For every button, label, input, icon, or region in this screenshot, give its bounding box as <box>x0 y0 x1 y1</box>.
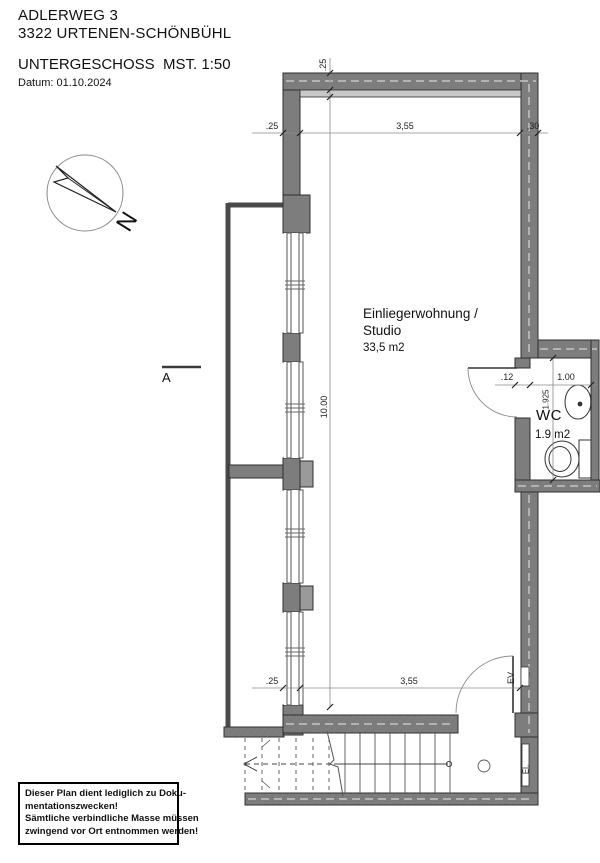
stairs <box>244 731 490 796</box>
lightwell-bottom-hatch <box>224 727 284 737</box>
dim-top-left: .25 <box>260 121 284 131</box>
dim-wall-top: .25 <box>318 54 328 76</box>
lightwell-walls <box>224 465 285 737</box>
plan-drawing <box>0 0 600 863</box>
dim-wc-gap: .12 <box>495 372 519 382</box>
dim-room-depth: 10.00 <box>319 390 329 424</box>
section-label: A <box>162 370 171 385</box>
entry-door-swing <box>456 656 513 713</box>
ev-label: EV <box>506 668 516 688</box>
disclaimer-box: Dieser Plan dient lediglich zu Doku- men… <box>18 782 179 845</box>
room-name-line2: Studio <box>363 323 401 338</box>
disclaimer-line: zwingend vor Ort entnommen werden! <box>25 826 173 839</box>
wc-area: 1.9 m2 <box>535 429 570 441</box>
disclaimer-line: Dieser Plan dient lediglich zu Doku- <box>25 788 173 801</box>
plan-date: Datum: 01.10.2024 <box>18 77 112 89</box>
plan-title: UNTERGESCHOSS MST. 1:50 <box>18 56 231 73</box>
walking-line <box>244 740 452 788</box>
dim-top-width: 3,55 <box>385 121 425 131</box>
dim-wc-width: 1.00 <box>554 372 578 382</box>
dim-bottom-left: .25 <box>260 676 284 686</box>
floor-plan-page: ADLERWEG 3 3322 URTENEN-SCHÖNBÜHL UNTERG… <box>0 0 600 863</box>
dim-wc-depth: 1.925 <box>542 383 551 417</box>
doors <box>456 368 517 713</box>
toilet <box>545 440 591 478</box>
dim-bottom-width: 3,55 <box>389 676 429 686</box>
address-line2: 3322 URTENEN-SCHÖNBÜHL <box>18 25 231 42</box>
address-line1: ADLERWEG 3 <box>18 7 118 24</box>
disclaimer-line: mentationszwecken! <box>25 801 173 814</box>
floor-drain <box>478 760 490 772</box>
room-area: 33,5 m2 <box>363 342 405 354</box>
dim-top-right: ,30 <box>519 121 547 131</box>
sink <box>565 385 591 419</box>
plaster-band <box>300 90 521 97</box>
room-name-line1: Einliegerwohnung / <box>363 306 478 321</box>
el-label: El. <box>522 760 531 780</box>
disclaimer-line: Sämtliche verbindliche Masse müssen <box>25 813 173 826</box>
ev-niche <box>521 667 529 686</box>
